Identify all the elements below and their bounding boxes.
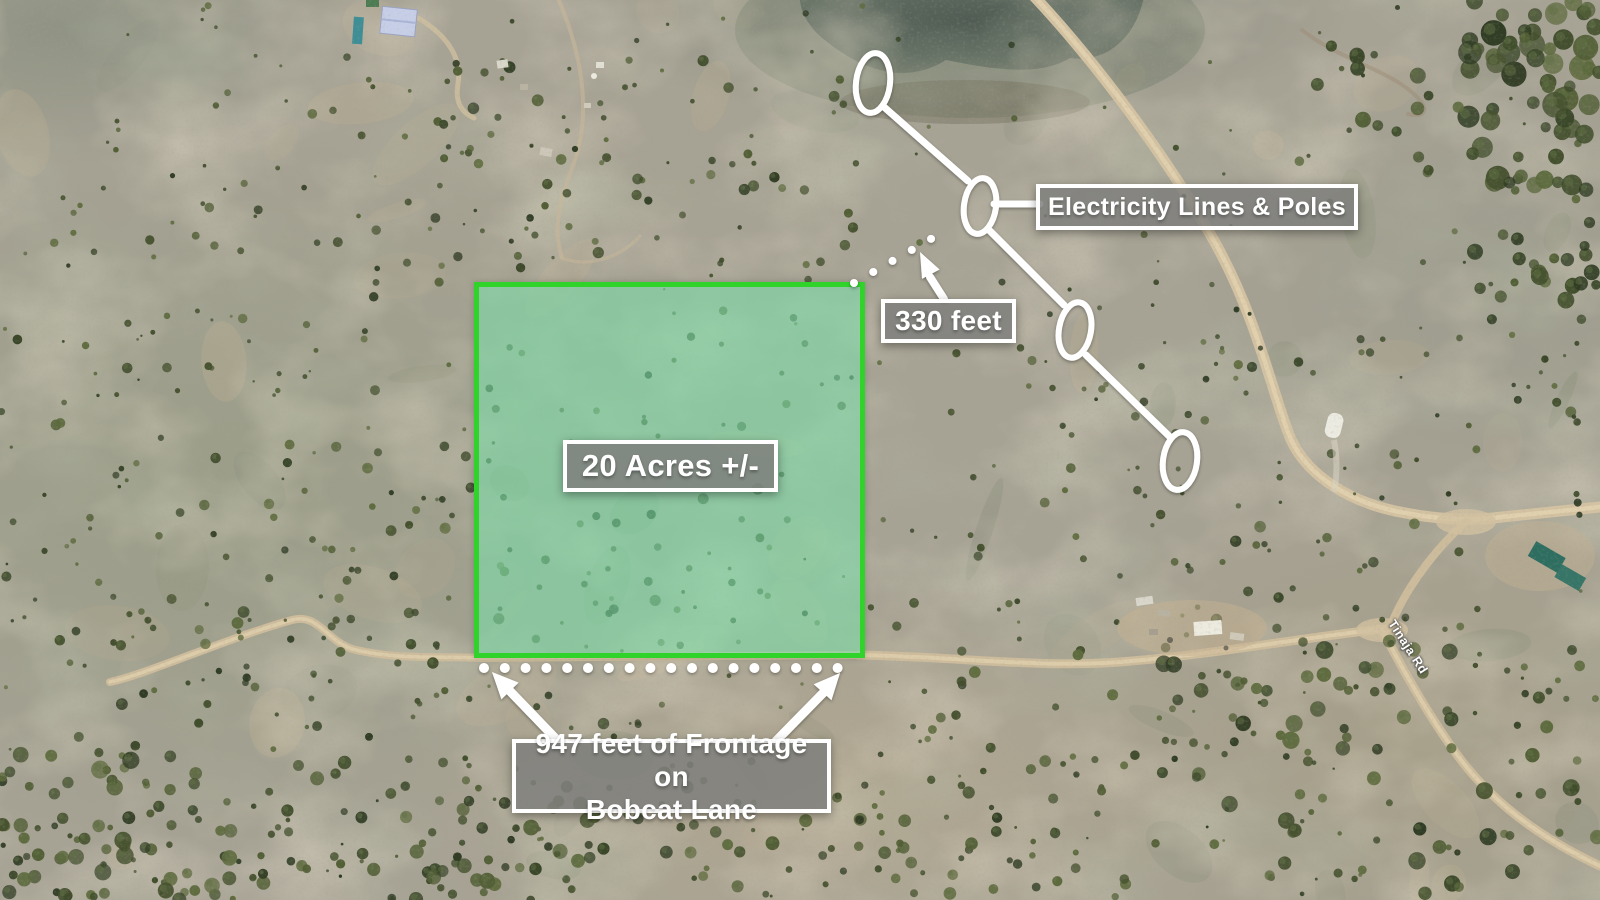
callout-frontage: 947 feet of Frontage on Bobcat Lane bbox=[512, 739, 831, 813]
power-pole-marker-2 bbox=[960, 176, 999, 236]
callout-frontage-line2: Bobcat Lane bbox=[586, 794, 757, 825]
power-pole-marker-1 bbox=[852, 51, 893, 115]
power-distance-dotted-line bbox=[854, 228, 950, 283]
callout-power-distance: 330 feet bbox=[881, 299, 1016, 343]
power-line-segment bbox=[1086, 355, 1170, 437]
power-line-segment bbox=[884, 107, 968, 181]
power-pole-marker-4 bbox=[1159, 430, 1201, 492]
callout-power-distance-text: 330 feet bbox=[895, 305, 1002, 337]
power-line-segment bbox=[990, 231, 1064, 305]
callout-electricity-text: Electricity Lines & Poles bbox=[1048, 193, 1346, 222]
property-aerial-map: Tinaja Rd Electricity Lines & Poles 330 … bbox=[0, 0, 1600, 900]
power-pole-marker-3 bbox=[1054, 300, 1095, 361]
callout-acreage: 20 Acres +/- bbox=[563, 440, 778, 492]
callout-frontage-line1: 947 feet of Frontage on bbox=[535, 728, 807, 792]
callout-acreage-text: 20 Acres +/- bbox=[582, 448, 759, 484]
callout-electricity-lines: Electricity Lines & Poles bbox=[1036, 184, 1358, 230]
callout-frontage-text: 947 feet of Frontage on Bobcat Lane bbox=[516, 727, 827, 826]
arrow-to-power-line bbox=[920, 252, 944, 299]
